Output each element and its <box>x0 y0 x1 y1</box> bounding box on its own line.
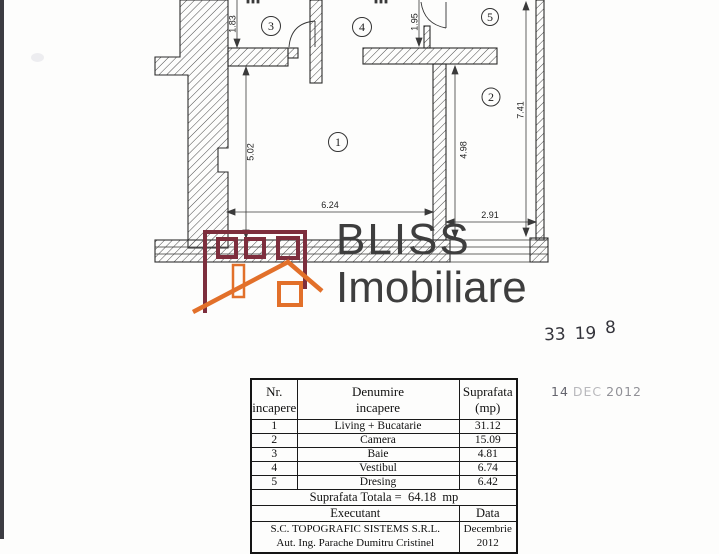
dim-label-6-24: 6.24 <box>321 200 339 210</box>
header-line: Nr. <box>266 384 282 399</box>
wall-bottom-corner <box>530 238 548 262</box>
room-nr: 4 <box>251 462 297 476</box>
room-number-5: 5 <box>487 10 493 24</box>
logo-text-imobiliare: Imobiliare <box>336 266 527 310</box>
date-stamp: 14DEC2012 <box>551 384 642 399</box>
room-area: 15.09 <box>459 434 517 448</box>
room-area: 4.81 <box>459 448 517 462</box>
table-row: 1 Living + Bucatarie 31.12 <box>251 420 517 434</box>
wall-middle-top <box>310 0 322 83</box>
room-number-2: 2 <box>488 90 494 104</box>
total-row: Suprafata Totala = 64.18 mp <box>251 490 517 506</box>
room-number-1: 1 <box>335 135 341 149</box>
header-line: (mp) <box>475 400 500 415</box>
dim-label-1-95: 1.95 <box>409 13 419 31</box>
registration-number-stamp: 33198 <box>544 323 617 346</box>
date-stamp-day: 14 <box>551 384 569 399</box>
date-stamp-year: 2012 <box>606 384 642 399</box>
logo-roof <box>193 262 322 312</box>
room-number-4: 4 <box>359 20 365 34</box>
dim-label-2-91: 2.91 <box>481 210 499 220</box>
room-nr: 5 <box>251 476 297 490</box>
wall-left <box>155 0 228 248</box>
executant-label-cell: Executant <box>251 506 459 522</box>
room-markers: 1 2 3 4 5 <box>262 9 501 152</box>
wall-stub <box>288 48 298 58</box>
room-areas-table: Nr. incapere Denumire incapere Suprafata… <box>250 378 518 554</box>
total-label: Suprafata Totala = <box>310 490 402 504</box>
table-row: 4 Vestibul 6.74 <box>251 462 517 476</box>
total-unit: mp <box>442 490 458 504</box>
room-nr: 3 <box>251 448 297 462</box>
col-header-suprafata-mp: Suprafata (mp) <box>459 379 517 420</box>
wall-right <box>536 0 544 240</box>
dim-label-1-83: 1.83 <box>227 15 237 33</box>
room-area: 31.12 <box>459 420 517 434</box>
stamp-number-part: 19 <box>574 323 596 344</box>
dimension-labels: 1.83 1.95 5.02 4.98 6.24 2.91 7.41 <box>227 13 525 220</box>
header-line: Denumire <box>352 384 404 399</box>
table-header-row: Nr. incapere Denumire incapere Suprafata… <box>251 379 517 420</box>
room-number-3: 3 <box>268 19 274 33</box>
date-value-cell: Decembrie 2012 <box>459 522 517 554</box>
wall-room1-room2 <box>433 64 446 240</box>
room-area: 6.42 <box>459 476 517 490</box>
col-header-denumire-incapere: Denumire incapere <box>297 379 459 420</box>
room-nr: 1 <box>251 420 297 434</box>
table-row: 5 Dresing 6.42 <box>251 476 517 490</box>
room-name: Living + Bucatarie <box>297 420 459 434</box>
table-row: 3 Baie 4.81 <box>251 448 517 462</box>
room-name: Baie <box>297 448 459 462</box>
total-value: 64.18 <box>408 490 436 504</box>
logo-roof-window <box>279 283 301 305</box>
header-line: incapere <box>356 400 400 415</box>
date-stamp-month: DEC <box>573 384 602 399</box>
dim-label-5-02: 5.02 <box>245 143 255 161</box>
room-name: Camera <box>297 434 459 448</box>
stamp-number-part: 33 <box>544 325 566 346</box>
logo-text-bliss: BLISS <box>336 219 471 261</box>
room-nr: 2 <box>251 434 297 448</box>
stamp-number-part: 8 <box>605 318 617 338</box>
executant-value-row: S.C. TOPOGRAFIC SISTEMS S.R.L. Aut. Ing.… <box>251 522 517 554</box>
executant-header-row: Executant Data <box>251 506 517 522</box>
executant-company: S.C. TOPOGRAFIC SISTEMS S.R.L. <box>270 523 440 535</box>
wall-door-stub <box>424 26 430 48</box>
room-name: Vestibul <box>297 462 459 476</box>
dim-label-7-41: 7.41 <box>515 101 525 119</box>
room-name: Dresing <box>297 476 459 490</box>
table-row: 2 Camera 15.09 <box>251 434 517 448</box>
header-line: incapere <box>252 400 296 415</box>
dim-label-4-98: 4.98 <box>458 141 468 159</box>
header-line: Suprafata <box>463 384 513 399</box>
data-label-cell: Data <box>459 506 517 522</box>
wall-under-room4-5 <box>363 48 497 64</box>
room-area: 6.74 <box>459 462 517 476</box>
executant-value-cell: S.C. TOPOGRAFIC SISTEMS S.R.L. Aut. Ing.… <box>251 522 459 554</box>
total-area-cell: Suprafata Totala = 64.18 mp <box>251 490 517 506</box>
door-arc-room5 <box>421 2 446 28</box>
wall-under-room3 <box>228 48 288 66</box>
col-header-nr-incapere: Nr. incapere <box>251 379 297 420</box>
